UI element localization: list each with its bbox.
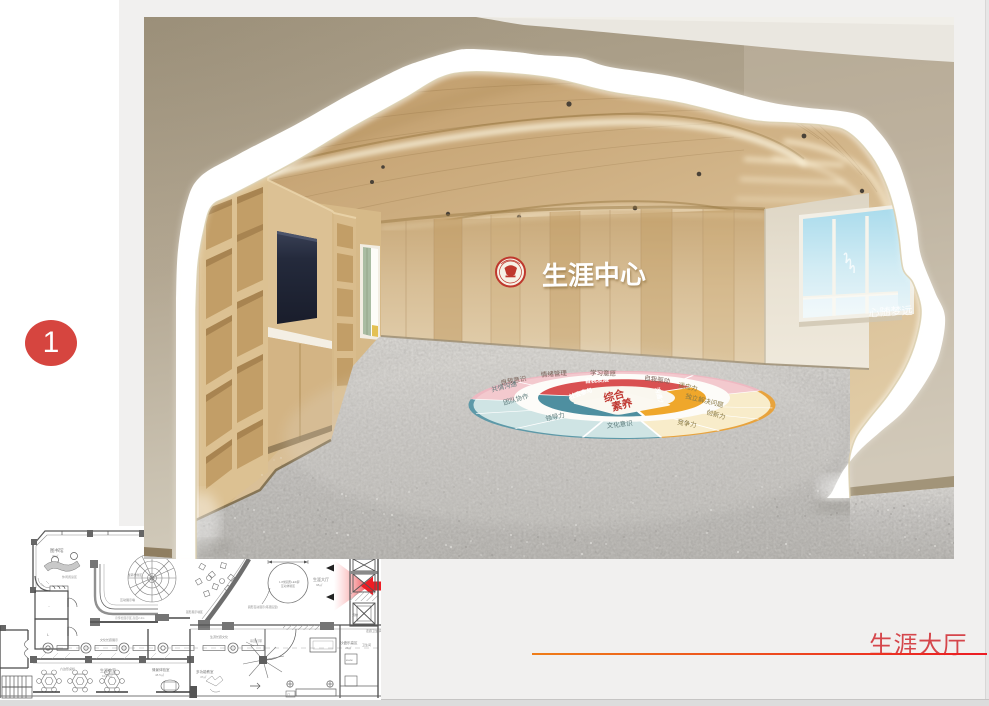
svg-text:圆形互动展示(吊顶造型): 圆形互动展示(吊顶造型)	[248, 605, 278, 609]
svg-text:98㎡: 98㎡	[316, 582, 322, 587]
svg-text:弧形展示墙区: 弧形展示墙区	[186, 610, 203, 614]
svg-text:货梯: 货梯	[352, 612, 358, 617]
svg-text:26㎡: 26㎡	[345, 645, 351, 650]
svg-text:沙盘乐高区: 沙盘乐高区	[340, 640, 358, 645]
svg-text:休闲阅读区: 休闲阅读区	[62, 574, 77, 579]
svg-text:··: ··	[48, 605, 50, 609]
svg-text:多功能教室: 多功能教室	[196, 669, 214, 674]
svg-text:生涯长廊文化: 生涯长廊文化	[210, 634, 228, 639]
svg-text:卫生间: 卫生间	[362, 642, 371, 647]
svg-text:книж: книж	[346, 658, 353, 662]
svg-text:生涯中心: 生涯中心	[542, 260, 647, 291]
svg-text:47㎡: 47㎡	[200, 674, 206, 679]
svg-text:走廊卫生 间 2.5m: 走廊卫生 间 2.5m	[366, 628, 381, 633]
svg-text:文化长廊展示: 文化长廊展示	[100, 637, 118, 642]
svg-text:旋转楼梯区: 旋转楼梯区	[128, 573, 142, 577]
svg-text:L: L	[47, 632, 50, 637]
svg-text:六边形桌椅: 六边形桌椅	[60, 666, 75, 671]
svg-text:互动展示墙: 互动展示墙	[120, 597, 135, 602]
svg-text:宣传栏展示区 高度2.4m: 宣传栏展示区 高度2.4m	[115, 616, 145, 620]
svg-text:48.5㎡: 48.5㎡	[155, 672, 164, 677]
svg-text:互动体验区: 互动体验区	[281, 584, 295, 588]
svg-text:生涯大厅: 生涯大厅	[313, 576, 329, 582]
svg-text:情景体验室: 情景体验室	[152, 667, 170, 672]
svg-text:图书馆: 图书馆	[50, 547, 64, 554]
